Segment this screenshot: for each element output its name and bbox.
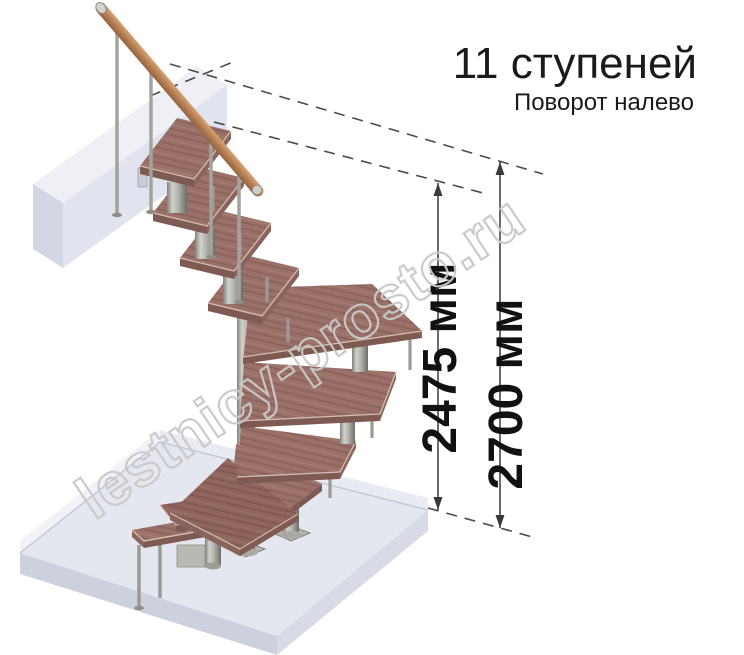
tread-pedestal	[340, 420, 355, 444]
arrow-up-icon	[496, 162, 505, 175]
page-title: 11 ступеней	[453, 39, 697, 88]
baluster-foot	[146, 210, 156, 214]
leg-foot	[134, 606, 144, 610]
page-subtitle: Поворот налево	[514, 89, 694, 116]
baluster-foot	[112, 213, 122, 217]
dimension-label-outer: 2700 мм	[480, 298, 533, 489]
baluster-foot	[206, 255, 216, 259]
baluster-foot	[234, 300, 244, 304]
handrail-end-cap	[253, 186, 262, 195]
column-flange	[280, 531, 302, 539]
staircase-diagram-page: 2475 мм 2700 мм	[0, 0, 744, 655]
column-foot	[205, 563, 221, 570]
floor-level-dash	[428, 508, 536, 538]
staircase-illustration: 2475 мм 2700 мм	[0, 0, 744, 655]
arrow-up-icon	[434, 183, 443, 196]
arrow-down-icon	[434, 497, 443, 510]
heading: 11 ступеней Поворот налево	[453, 39, 697, 116]
tread-top	[237, 426, 356, 477]
tread-pedestal	[167, 182, 187, 213]
arrow-down-icon	[496, 515, 505, 528]
support-bracket	[177, 545, 205, 567]
